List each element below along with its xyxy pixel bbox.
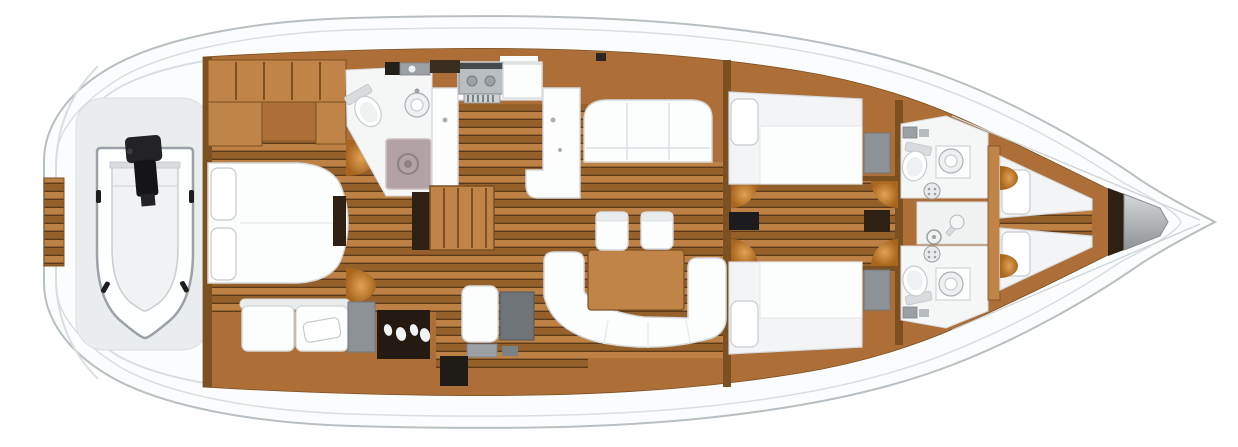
burner-icon [485,76,495,86]
deck-fitting [919,129,929,137]
deck-hatch [385,62,400,75]
locker-bulkhead [1108,188,1124,256]
refrigerator [503,64,542,98]
washbasin-bowl [411,99,423,111]
grate-ring [924,183,940,199]
vanity-unit [377,310,432,359]
chair-backrest [596,212,628,221]
burner-icon [467,76,477,86]
shower-drain-center [404,160,412,168]
teak-steps [44,178,64,266]
nav-panel-small [502,346,518,356]
galley-counter-left [432,88,458,190]
bed-foot-cabinet [333,196,346,246]
shower-drain-center [932,235,936,239]
deck-fitting [919,309,929,317]
drain-grate-icon [924,246,940,262]
chair-backrest [641,212,673,221]
yacht-interior-floor-plan [0,0,1238,447]
stair-rail [412,192,430,250]
deck-fitting [903,127,917,138]
dining-table [588,250,684,310]
wardrobe-cabinets [208,60,346,102]
faucet-icon [415,89,420,94]
storage-locker [348,302,375,352]
nav-panel [467,344,497,357]
chart-table [500,292,534,340]
nav-seat [462,286,498,342]
inflatable-dinghy [96,135,194,338]
bed-pillow [211,168,236,220]
bedside-locker [864,270,890,310]
bed-duvet [760,126,862,184]
deck-fitting [903,307,917,318]
winch-icon [408,65,416,73]
drain-grate-icon [924,183,940,199]
bed-pillow [211,228,236,280]
deck-hatch [430,60,460,73]
saloon-chair [641,212,673,249]
counter-fitting [558,148,562,152]
dresser [208,102,262,146]
tender-garage [76,98,210,350]
shower-head [950,215,964,229]
counter-fitting [443,118,448,123]
bedside-locker [864,133,890,173]
bed-duvet [760,262,862,318]
mast-post [729,212,759,230]
cooktop-icon [459,63,503,94]
grate-ring [924,246,940,262]
bed-pillow [731,301,758,347]
motor-shaft [134,159,159,197]
sofa-cushion [242,306,294,351]
mast-step [596,53,606,61]
washbasin-bowl [945,278,957,290]
saloon-chair [596,212,628,250]
cooktop-edge [459,63,503,69]
yacht-floor-plan-page [0,0,1238,447]
drainer-body [464,94,500,103]
bilge-hatch [440,356,468,386]
companionway-stairs [430,186,494,250]
sink-drainer-icon [464,94,500,103]
side-cabinet [316,102,346,144]
bed-pillow [731,99,758,145]
entry-column [988,146,1000,300]
motor-skeg [141,193,156,206]
port-settee [584,100,712,162]
washbasin-bowl [945,155,957,167]
counter-fitting [551,118,556,123]
dinghy-handle [189,190,194,203]
corridor-cabinet [864,210,890,232]
dinghy-handle [96,190,101,203]
